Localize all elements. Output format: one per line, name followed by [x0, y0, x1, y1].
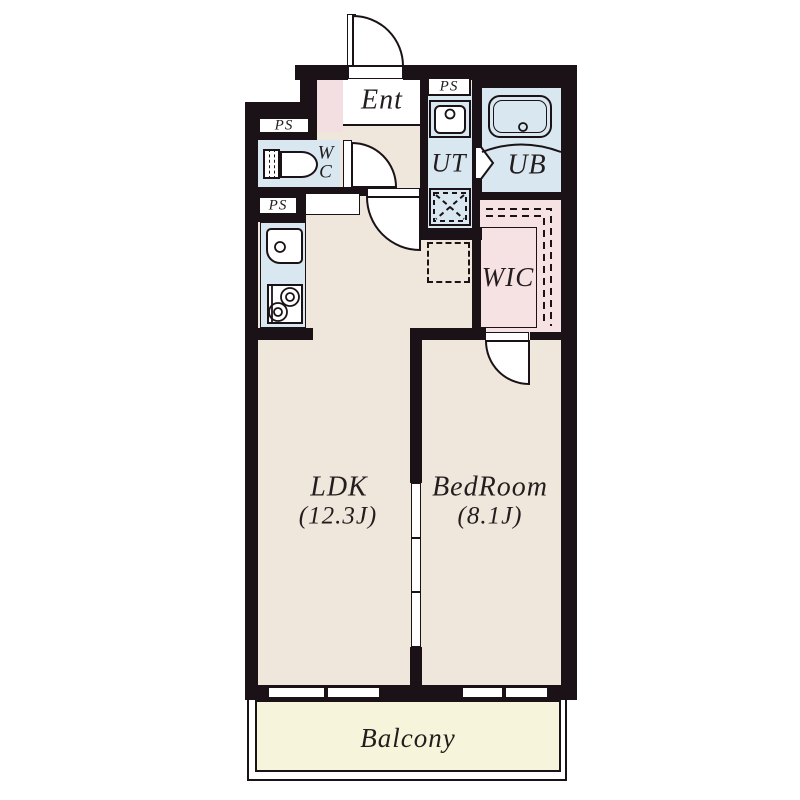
floor-plan: Ent PS PS PS W C UT UB WIC LDK (12.3J) B… — [0, 0, 800, 800]
stove-burners — [269, 286, 299, 322]
ps-label-lower-left: PS — [269, 198, 288, 213]
room-label-ldk: LDK — [310, 474, 367, 503]
room-label-balcony: Balcony — [360, 725, 455, 753]
plan-linework — [0, 0, 800, 800]
room-label-ut: UT — [431, 151, 466, 178]
washer-pan-dashes — [434, 193, 466, 221]
room-label-bedroom: BedRoom — [432, 474, 548, 503]
ps-label-upper-right: PS — [440, 79, 459, 94]
wc-letter-c: C — [318, 163, 335, 182]
room-size-bedroom: (8.1J) — [458, 503, 523, 529]
entrance-door-arc — [353, 16, 403, 66]
ldk-door-arc — [367, 197, 420, 250]
room-label-wc: W C — [318, 144, 335, 183]
wic-door-arc — [486, 341, 529, 384]
room-size-ldk: (12.3J) — [299, 503, 378, 529]
washbasin-faucet — [446, 110, 455, 119]
room-label-ent: Ent — [361, 87, 403, 116]
wc-door-arc — [352, 143, 396, 187]
room-label-wic: WIC — [482, 264, 535, 292]
sink-faucet — [275, 242, 285, 252]
room-label-ub: UB — [507, 152, 546, 181]
ps-label-upper-left: PS — [275, 118, 294, 133]
wc-letter-w: W — [318, 144, 335, 163]
bathtub-drain — [519, 123, 527, 131]
